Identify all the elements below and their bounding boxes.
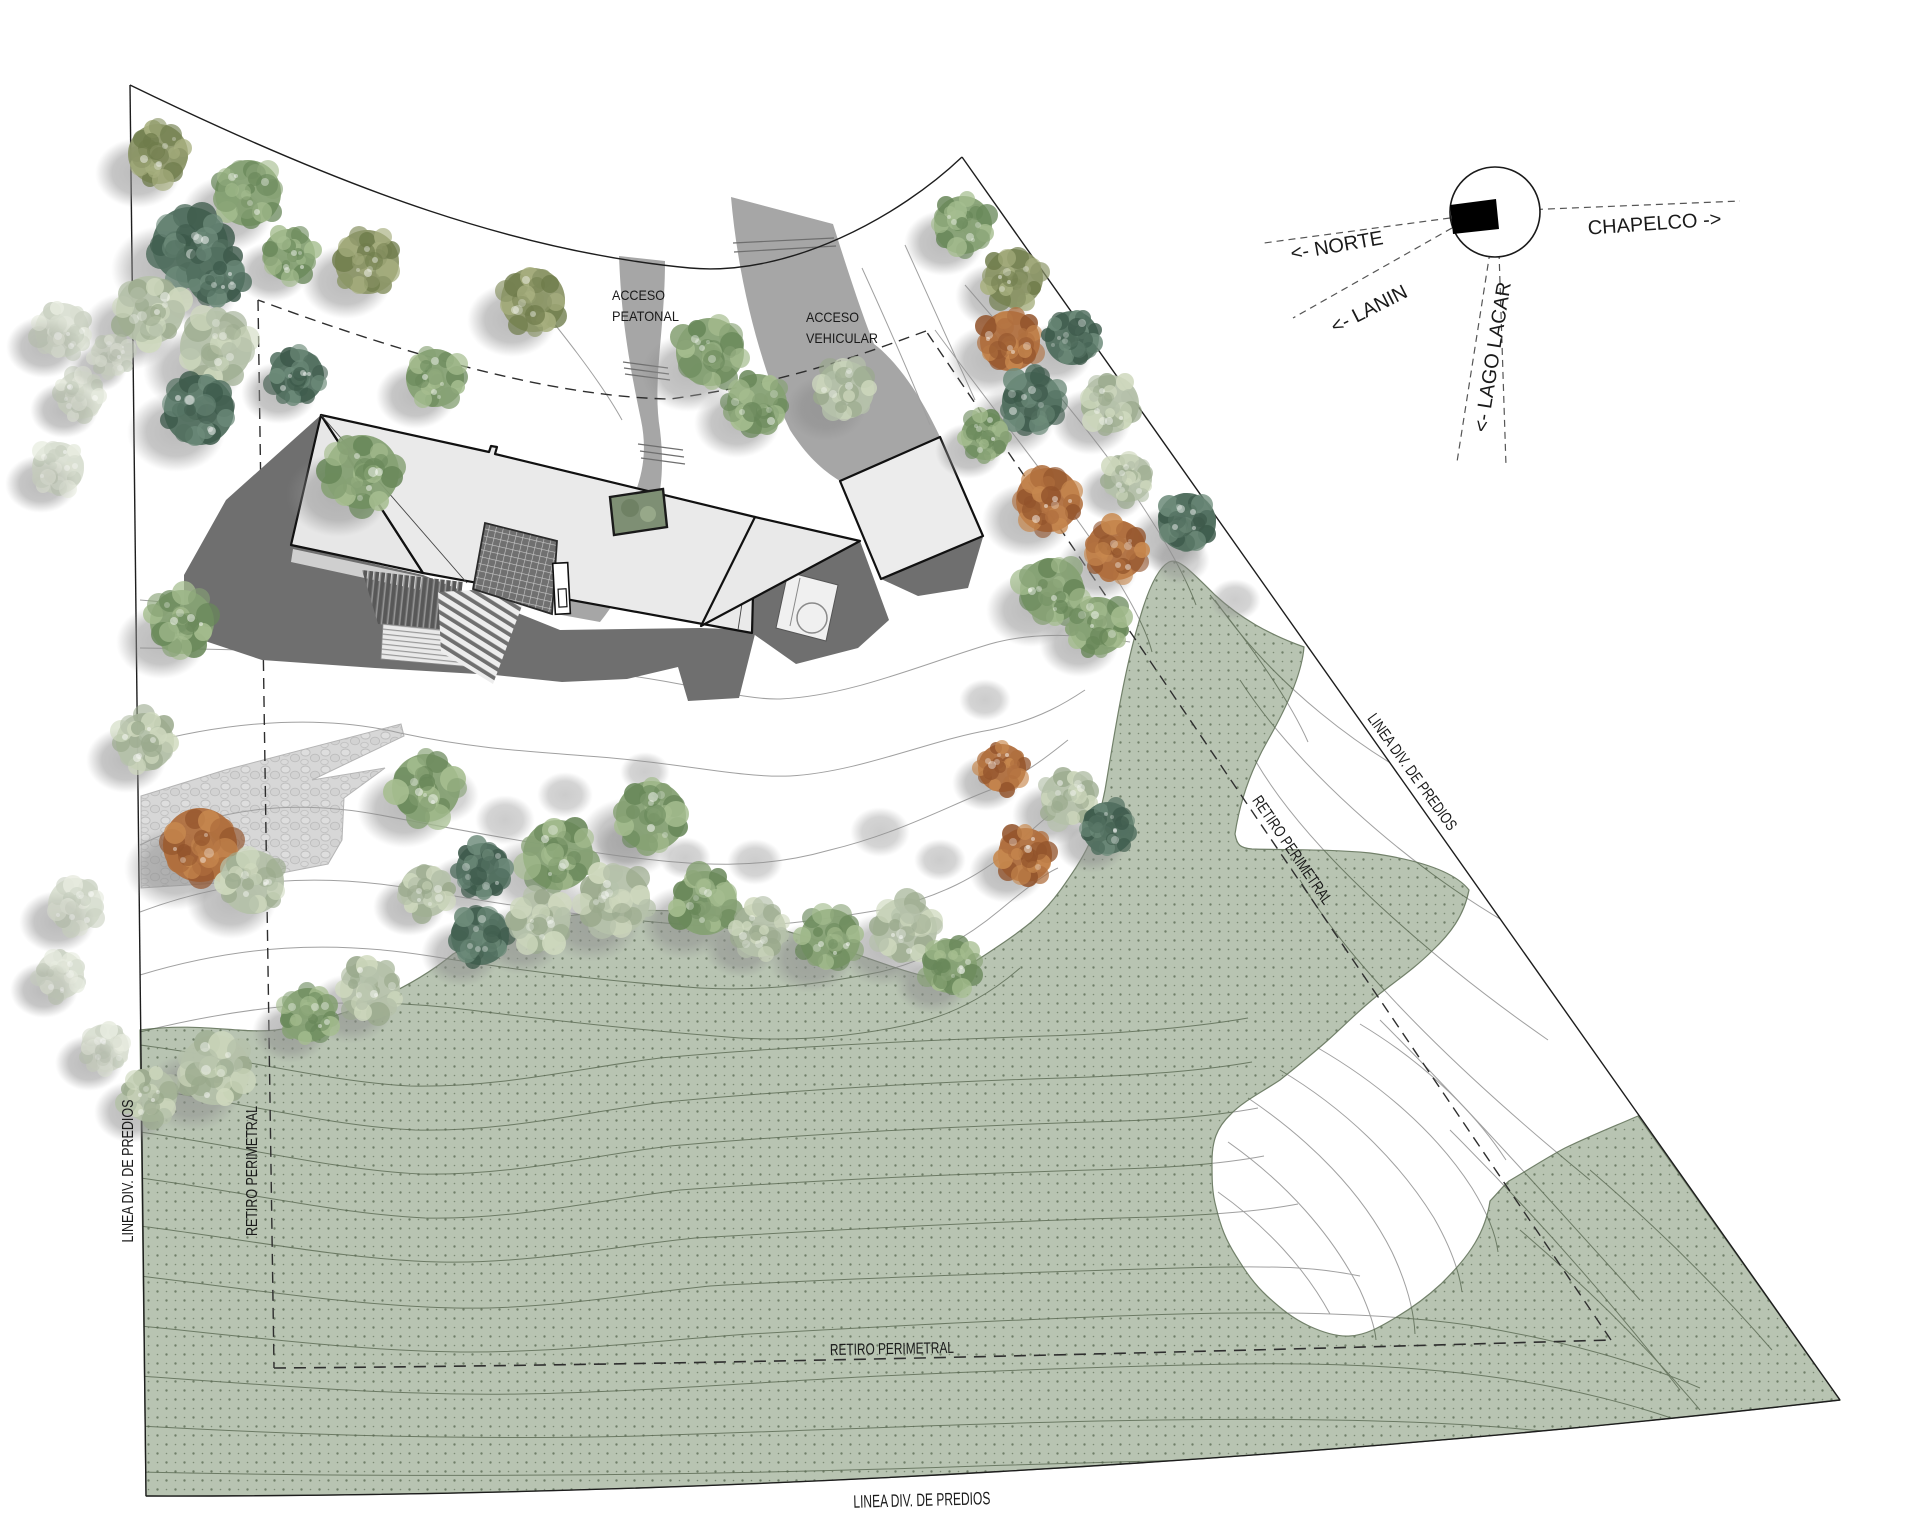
svg-text:LINEA DIV. DE PREDIOS: LINEA DIV. DE PREDIOS xyxy=(853,1488,990,1512)
svg-text:LINEA DIV. DE PREDIOS: LINEA DIV. DE PREDIOS xyxy=(120,1100,137,1243)
svg-text:RETIRO PERIMETRAL: RETIRO PERIMETRAL xyxy=(830,1340,954,1359)
svg-text:VEHICULAR: VEHICULAR xyxy=(806,330,878,346)
svg-text:PEATONAL: PEATONAL xyxy=(612,308,679,324)
svg-text:RETIRO PERIMETRAL: RETIRO PERIMETRAL xyxy=(244,1106,261,1236)
svg-text:ACCESO: ACCESO xyxy=(612,287,665,303)
svg-text:ACCESO: ACCESO xyxy=(806,309,859,325)
